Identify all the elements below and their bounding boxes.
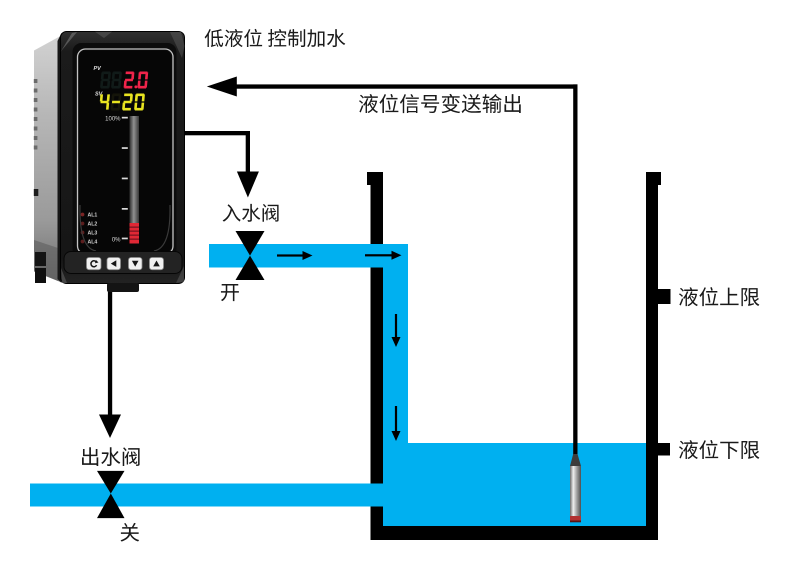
svg-text:AL2: AL2 (88, 222, 98, 228)
svg-text:0%: 0% (112, 238, 121, 244)
svg-text:AL1: AL1 (88, 213, 98, 219)
svg-text:AL3: AL3 (88, 231, 98, 237)
svg-text:100%: 100% (105, 117, 121, 123)
svg-text:AL4: AL4 (88, 240, 98, 246)
